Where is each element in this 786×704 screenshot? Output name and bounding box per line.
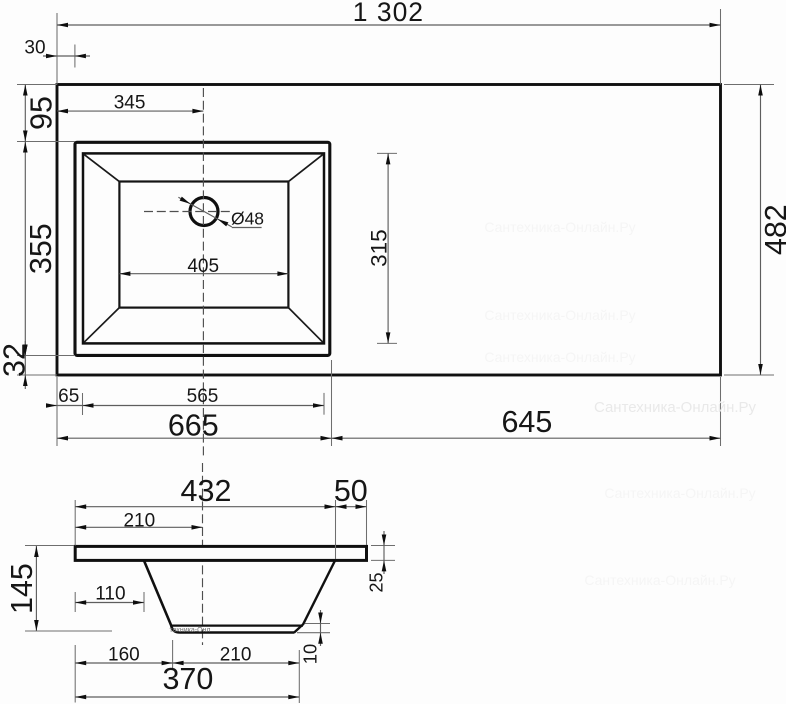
svg-text:432: 432 [181, 474, 232, 508]
svg-text:25: 25 [366, 572, 386, 592]
svg-text:32: 32 [0, 343, 31, 377]
svg-text:645: 645 [501, 405, 552, 439]
svg-text:Сантехника-Онлайн.Ру: Сантехника-Онлайн.Ру [584, 572, 735, 588]
svg-text:145: 145 [5, 563, 39, 614]
svg-text:665: 665 [168, 408, 219, 442]
svg-text:Сантехника-Онлайн.Ру: Сантехника-Онлайн.Ру [484, 307, 635, 323]
svg-text:110: 110 [95, 583, 125, 604]
svg-text:210: 210 [123, 510, 155, 531]
svg-text:355: 355 [24, 223, 58, 274]
svg-text:405: 405 [187, 256, 219, 277]
svg-text:95: 95 [25, 96, 59, 130]
svg-text:50: 50 [334, 474, 368, 508]
svg-text:Сантехника-Онлайн.Ру: Сантехника-Онлайн.Ру [604, 485, 755, 501]
svg-text:1 302: 1 302 [353, 0, 424, 27]
svg-text:30: 30 [24, 38, 45, 59]
svg-text:техника-Онл: техника-Онл [170, 627, 211, 634]
svg-text:Сантехника-Онлайн.Ру: Сантехника-Онлайн.Ру [484, 219, 635, 235]
svg-text:65: 65 [58, 386, 79, 407]
svg-text:Сантехника-Онлайн.Ру: Сантехника-Онлайн.Ру [594, 399, 757, 416]
svg-text:345: 345 [114, 92, 146, 113]
svg-text:160: 160 [108, 645, 140, 666]
svg-text:Сантехника-Онлайн.Ру: Сантехника-Онлайн.Ру [484, 349, 635, 365]
svg-text:210: 210 [220, 645, 252, 666]
svg-text:565: 565 [187, 386, 219, 407]
svg-text:370: 370 [162, 662, 213, 696]
svg-text:482: 482 [759, 204, 786, 255]
svg-text:Ø48: Ø48 [231, 209, 264, 229]
svg-text:315: 315 [366, 229, 391, 267]
svg-text:10: 10 [299, 644, 320, 665]
